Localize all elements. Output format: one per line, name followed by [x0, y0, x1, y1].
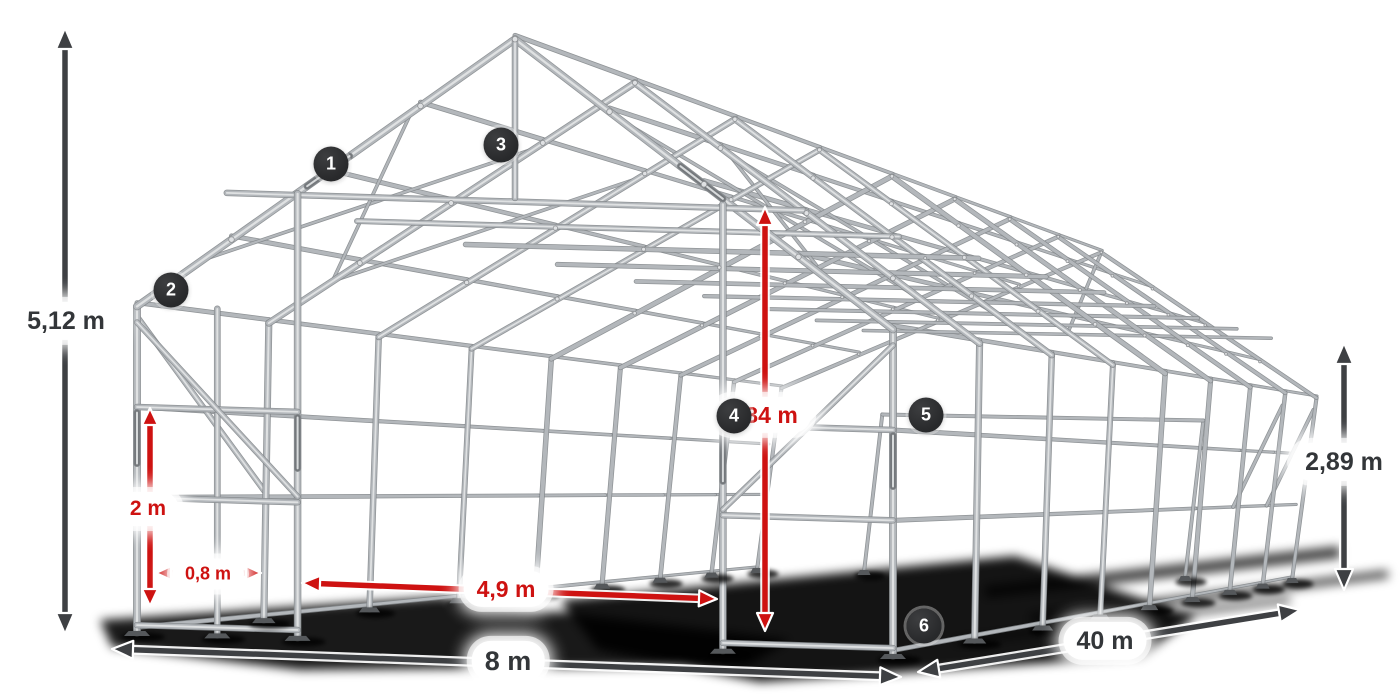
- hotspot-5[interactable]: 5: [909, 398, 944, 433]
- hotspot-6[interactable]: 6: [907, 609, 942, 644]
- tent-frame-diagram: 5,12 m 2,89 m 8 m 40 m 2 m 0,8 m 4,9 m 4…: [0, 0, 1400, 700]
- tent-frame-illustration: [0, 0, 1400, 700]
- dimension-width: 8 m: [472, 641, 545, 681]
- dimension-ridge-height: 5,12 m: [14, 302, 118, 340]
- dimension-rail-height: 2 m: [117, 492, 179, 526]
- dimension-length: 40 m: [1064, 622, 1147, 660]
- hotspot-4[interactable]: 4: [717, 399, 752, 434]
- hotspot-3[interactable]: 3: [484, 128, 519, 163]
- dimension-gate-width: 4,9 m: [464, 571, 549, 607]
- hotspot-1[interactable]: 1: [314, 147, 349, 182]
- dimension-post-spacing: 0,8 m: [172, 559, 244, 590]
- steel-frame: [137, 35, 1317, 656]
- dimension-eave-height: 2,89 m: [1292, 443, 1396, 481]
- hotspot-2[interactable]: 2: [154, 273, 189, 308]
